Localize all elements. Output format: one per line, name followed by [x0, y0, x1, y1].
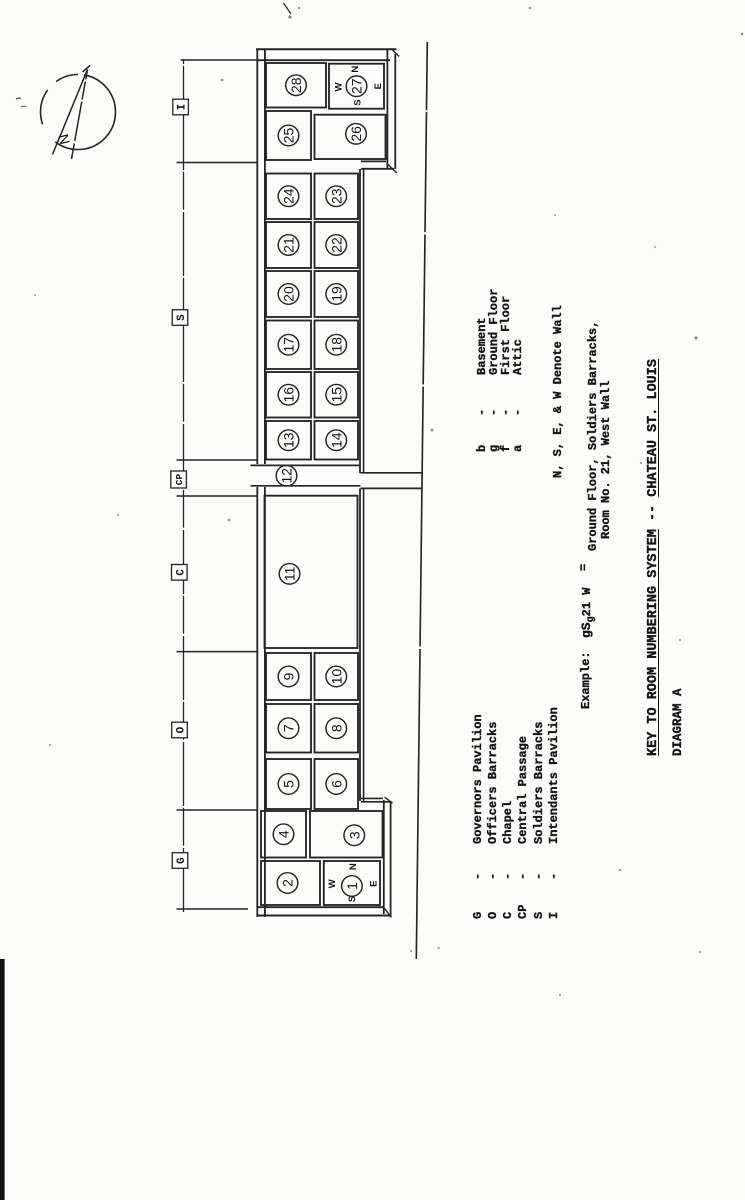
svg-text:3: 3 — [346, 831, 362, 839]
svg-text:27: 27 — [349, 78, 365, 94]
svg-text:O: O — [175, 726, 187, 733]
svg-text:S: S — [176, 314, 188, 321]
svg-text:W: W — [327, 879, 338, 888]
svg-text:E: E — [373, 83, 384, 89]
svg-text:C: C — [175, 569, 187, 576]
svg-text:S: S — [347, 896, 358, 902]
svg-text:W: W — [334, 82, 345, 91]
svg-text:1: 1 — [344, 882, 360, 890]
svg-text:13: 13 — [281, 432, 297, 448]
svg-text:22: 22 — [328, 237, 344, 253]
svg-text:N: N — [348, 863, 359, 870]
svg-text:14: 14 — [328, 432, 344, 448]
svg-text:10: 10 — [328, 669, 344, 685]
svg-text:CP: CP — [174, 474, 185, 486]
svg-text:N: N — [55, 132, 73, 146]
svg-text:2: 2 — [280, 879, 296, 887]
svg-text:25: 25 — [281, 128, 297, 144]
svg-text:6: 6 — [328, 780, 344, 788]
svg-text:26: 26 — [348, 126, 364, 142]
svg-text:N: N — [350, 66, 361, 73]
svg-text:G: G — [176, 857, 188, 864]
svg-text:9: 9 — [281, 672, 297, 680]
svg-text:18: 18 — [328, 337, 344, 353]
svg-text:17: 17 — [281, 337, 297, 353]
svg-text:12: 12 — [279, 468, 295, 484]
svg-text:28: 28 — [288, 77, 304, 93]
svg-text:16: 16 — [281, 387, 297, 403]
svg-text:20: 20 — [281, 286, 297, 302]
svg-text:15: 15 — [328, 387, 344, 403]
svg-text:I: I — [177, 104, 189, 111]
svg-text:E: E — [369, 881, 380, 887]
svg-text:7: 7 — [281, 724, 297, 732]
svg-text:19: 19 — [328, 286, 344, 302]
svg-text:S: S — [352, 99, 363, 105]
svg-text:8: 8 — [328, 724, 344, 732]
svg-text:21: 21 — [281, 237, 297, 253]
svg-text:11: 11 — [282, 566, 298, 581]
svg-text:4: 4 — [276, 830, 292, 838]
svg-text:24: 24 — [281, 188, 297, 204]
svg-text:5: 5 — [281, 780, 297, 788]
svg-text:23: 23 — [328, 188, 344, 204]
